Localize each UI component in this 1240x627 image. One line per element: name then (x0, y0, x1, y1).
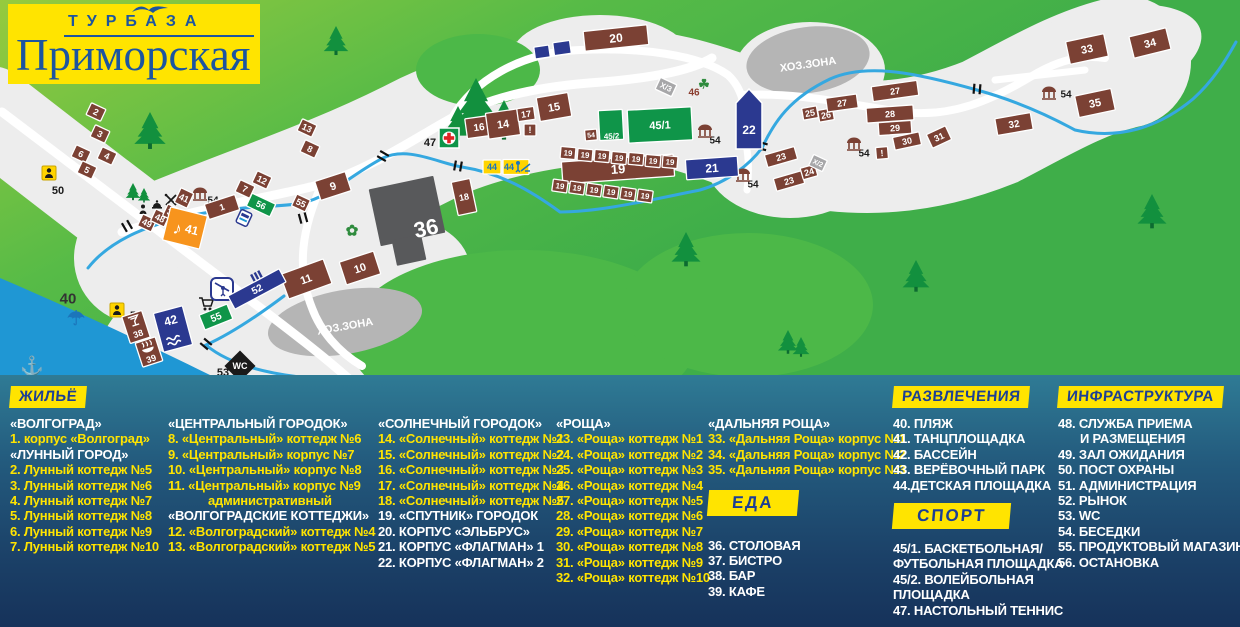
svg-text:47: 47 (424, 137, 436, 149)
map-marker-bldg-25: 25 (802, 106, 819, 120)
legend-item: 40. ПЛЯЖ (893, 416, 1063, 431)
svg-text:19: 19 (614, 153, 624, 163)
map-marker-beach-number-label: 40 (60, 290, 77, 307)
map-marker-bldg-19-tile: 19 (577, 148, 593, 161)
legend-item: 25. «Роща» коттедж №3 (556, 462, 710, 477)
legend-item: 15. «Солнечный» коттедж №2 (378, 447, 564, 462)
map-marker-security-label-1: 50 (52, 185, 64, 197)
svg-text:15: 15 (547, 101, 561, 115)
svg-text:50: 50 (52, 185, 64, 197)
legend-header-спорт: СПОРТ (892, 503, 1011, 529)
svg-text:44: 44 (487, 162, 497, 172)
legend-item: 19. «СПУТНИК» ГОРОДОК (378, 508, 564, 523)
legend-header-развлечения: РАЗВЛЕЧЕНИЯ (892, 386, 1030, 408)
legend-item: 33. «Дальняя Роща» корпус №1 (708, 431, 906, 446)
map-marker-bldg-14: 14 (485, 109, 520, 139)
svg-text:19: 19 (665, 157, 675, 167)
svg-text:18: 18 (458, 191, 470, 203)
legend-item: 18. «Солнечный» коттедж №5 (378, 493, 564, 508)
legend-item: 14. «Солнечный» коттедж №1 (378, 431, 564, 446)
map-marker-alert-tag: ! (524, 124, 536, 136)
legend-item: 42. БАССЕЙН (893, 447, 1063, 462)
map-marker-bldg-19-tile: 19 (637, 189, 654, 203)
logo: ТУРБАЗА Приморская (8, 4, 260, 84)
legend-column-6: РАЗВЛЕЧЕНИЯ40. ПЛЯЖ41. ТАНЦПЛОЩАДКА42. Б… (893, 375, 1063, 618)
legend-item: 8. «Центральный» коттедж №6 (168, 431, 375, 446)
legend-item: «ЛУННЫЙ ГОРОД» (10, 447, 159, 462)
legend-item: «ЦЕНТРАЛЬНЫЙ ГОРОДОК» (168, 416, 375, 431)
map-marker-bldg-19-tile: 19 (620, 187, 637, 201)
svg-text:19: 19 (563, 148, 573, 158)
legend-item: 21. КОРПУС «ФЛАГМАН» 1 (378, 539, 564, 554)
svg-text:19: 19 (623, 189, 634, 199)
legend-item: 11. «Центральный» корпус №9 (168, 478, 375, 493)
svg-text:27: 27 (836, 98, 847, 109)
map-marker-umbrella-icon: ☂ (67, 308, 85, 330)
map-marker-medical-cross-icon (439, 128, 459, 148)
legend-item: 55. ПРОДУКТОВЫЙ МАГАЗИН (1058, 539, 1240, 554)
svg-text:19: 19 (648, 156, 658, 166)
legend-item: 26. «Роща» коттедж №4 (556, 478, 710, 493)
legend-item: 17. «Солнечный» коттедж №4 (378, 478, 564, 493)
legend-item: 13. «Волгоградский» коттедж №5 (168, 539, 375, 554)
map-marker-navy-annex (553, 40, 572, 55)
svg-text:⚓: ⚓ (20, 355, 44, 375)
legend-item: 51. АДМИНИСТРАЦИЯ (1058, 478, 1240, 493)
turbaza-map-poster: { "logo": { "top": "ТУРБАЗА", "title": "… (0, 0, 1240, 627)
map-marker-tennis-label: 47 (424, 137, 436, 149)
legend-item: 50. ПОСТ ОХРАНЫ (1058, 462, 1240, 477)
legend-item: 41. ТАНЦПЛОЩАДКА (893, 431, 1063, 446)
map-marker-gazebo-tag-54: 54 (585, 129, 598, 141)
svg-text:22: 22 (742, 123, 756, 137)
map-marker-security-badge-2 (110, 303, 124, 317)
svg-text:19: 19 (589, 185, 600, 195)
legend-spacer (378, 386, 564, 416)
legend-item: И РАЗМЕЩЕНИЯ (1058, 431, 1240, 446)
legend-item: 9. «Центральный» корпус №7 (168, 447, 375, 462)
map-marker-gazebo-icon (698, 125, 712, 138)
map-marker-bldg-19-tile: 19 (611, 151, 627, 164)
map-marker-bldg-19-tile: 19 (628, 152, 644, 165)
map-marker-gazebo-icon (847, 138, 861, 151)
svg-text:19: 19 (572, 183, 583, 193)
logo-title: Приморская (16, 32, 250, 79)
legend-item: 44.ДЕТСКАЯ ПЛОЩАДКА (893, 478, 1063, 493)
legend-item: 37. БИСТРО (708, 553, 906, 568)
legend-item: 53. WC (1058, 508, 1240, 523)
legend-item: «СОЛНЕЧНЫЙ ГОРОДОК» (378, 416, 564, 431)
legend-item: 47. НАСТОЛЬНЫЙ ТЕННИС (893, 603, 1063, 618)
map-marker-bldg-29: 29 (878, 120, 912, 135)
svg-text:20: 20 (609, 31, 624, 46)
legend-item: 48. СЛУЖБА ПРИЕМА (1058, 416, 1240, 431)
map-marker-bldg-19-tile: 19 (569, 181, 586, 195)
map-marker-court-45-1: 45/1 (627, 107, 693, 143)
svg-text:19: 19 (580, 150, 590, 160)
legend-item: 5. Лунный коттедж №8 (10, 508, 159, 523)
svg-text:19: 19 (606, 187, 617, 197)
map-marker-bldg-19-tile: 19 (594, 149, 610, 162)
legend-item: 24. «Роща» коттедж №2 (556, 447, 710, 462)
legend-column-1: ЖИЛЬЁ«ВОЛГОГРАД»1. корпус «Волгоград»«ЛУ… (10, 375, 159, 555)
svg-text:45/1: 45/1 (649, 119, 671, 132)
map-marker-bldg-19-tile: 19 (586, 183, 603, 197)
svg-text:54: 54 (1060, 90, 1072, 101)
svg-text:✿: ✿ (346, 222, 359, 239)
legend-column-7: ИНФРАСТРУКТУРА48. СЛУЖБА ПРИЕМАИ РАЗМЕЩЕ… (1058, 375, 1240, 570)
legend-panel: ЖИЛЬЁ«ВОЛГОГРАД»1. корпус «Волгоград»«ЛУ… (0, 375, 1240, 627)
svg-text:19: 19 (555, 181, 566, 191)
map-marker-bldg-19-tile: 19 (645, 154, 661, 167)
map-marker-plant-icon: ☘ (698, 77, 710, 92)
legend-item: 29. «Роща» коттедж №7 (556, 524, 710, 539)
map-marker-bldg-19-tile: 19 (603, 185, 620, 199)
map-marker-security-badge-1 (42, 166, 56, 180)
legend-item: 12. «Волгоградский» коттедж №4 (168, 524, 375, 539)
legend-item: 35. «Дальняя Роща» корпус №3 (708, 462, 906, 477)
svg-text:17: 17 (520, 109, 531, 120)
legend-item: 23. «Роща» коттедж №1 (556, 431, 710, 446)
legend-item: 39. КАФЕ (708, 584, 906, 599)
legend-column-4: «РОЩА»23. «Роща» коттедж №124. «Роща» ко… (556, 375, 710, 585)
svg-text:19: 19 (640, 191, 651, 201)
legend-column-5: «ДАЛЬНЯЯ РОЩА»33. «Дальняя Роща» корпус … (708, 375, 906, 599)
legend-item: 27. «Роща» коттедж №5 (556, 493, 710, 508)
svg-text:36: 36 (411, 213, 440, 243)
svg-text:40: 40 (60, 290, 77, 307)
svg-text:25: 25 (804, 107, 816, 119)
svg-text:!: ! (529, 125, 532, 135)
svg-text:WC: WC (233, 361, 248, 371)
svg-text:21: 21 (705, 161, 720, 176)
legend-header-инфраструктура: ИНФРАСТРУКТУРА (1057, 386, 1224, 408)
map-marker-bldg-19-tile: 19 (560, 146, 576, 159)
svg-text:27: 27 (889, 86, 900, 97)
svg-text:16: 16 (473, 122, 486, 135)
map-marker-gazebo-icon (193, 188, 207, 201)
legend-item: «РОЩА» (556, 416, 710, 431)
legend-item: 56. ОСТАНОВКА (1058, 555, 1240, 570)
svg-text:19: 19 (597, 151, 607, 161)
map-marker-bldg-19-tile: 19 (552, 179, 569, 193)
legend-spacer (708, 386, 906, 416)
legend-item: 1. корпус «Волгоград» (10, 431, 159, 446)
legend-item: 2. Лунный коттедж №5 (10, 462, 159, 477)
legend-column-3: «СОЛНЕЧНЫЙ ГОРОДОК»14. «Солнечный» котте… (378, 375, 564, 570)
legend-item: 45/1. БАСКЕТБОЛЬНАЯ/ (893, 541, 1063, 556)
map-marker-navy-annex (534, 45, 551, 59)
legend-item: 45/2. ВОЛЕЙБОЛЬНАЯ (893, 572, 1063, 587)
map-marker-flower-icon: ✿ (346, 222, 359, 239)
svg-text:54: 54 (587, 132, 595, 140)
legend-item: 20. КОРПУС «ЭЛЬБРУС» (378, 524, 564, 539)
map-marker-bldg-17: 17 (517, 106, 536, 121)
legend-item: 32. «Роща» коттедж №10 (556, 570, 710, 585)
map-marker-anchor-icon: ⚓ (20, 355, 44, 375)
svg-text:28: 28 (885, 109, 896, 120)
map-marker-bldg-22: 22 (736, 89, 762, 149)
legend-item: 36. СТОЛОВАЯ (708, 538, 906, 553)
legend-item: 30. «Роща» коттедж №8 (556, 539, 710, 554)
legend-item: административный (168, 493, 375, 508)
legend-item: «ВОЛГОГРАД» (10, 416, 159, 431)
svg-text:45/2: 45/2 (604, 131, 621, 141)
svg-text:☂: ☂ (67, 308, 85, 330)
svg-text:35: 35 (1088, 97, 1102, 111)
legend-header-еда: ЕДА (707, 490, 799, 516)
legend-item: 4. Лунный коттедж №7 (10, 493, 159, 508)
legend-item: «ВОЛГОГРАДСКИЕ КОТТЕДЖИ» (168, 508, 375, 523)
legend-item: 31. «Роща» коттедж №9 (556, 555, 710, 570)
legend-item: 6. Лунный коттедж №9 (10, 524, 159, 539)
svg-text:29: 29 (890, 123, 901, 134)
svg-text:19: 19 (631, 154, 641, 164)
map-marker-playground-44b: 44 (503, 160, 530, 175)
legend-spacer (168, 386, 375, 416)
legend-item: 10. «Центральный» корпус №8 (168, 462, 375, 477)
legend-header-жильё: ЖИЛЬЁ (9, 386, 87, 408)
map-marker-playground-44a: 44 (483, 160, 501, 174)
map-marker-bldg-19-tile: 19 (662, 155, 678, 168)
map-marker-bldg-15: 15 (536, 92, 572, 121)
legend-item: 7. Лунный коттедж №10 (10, 539, 159, 554)
legend-item: 38. БАР (708, 568, 906, 583)
legend-item: 16. «Солнечный» коттедж №3 (378, 462, 564, 477)
legend-item: ПЛОЩАДКА (893, 587, 1063, 602)
legend-item: 54. БЕСЕДКИ (1058, 524, 1240, 539)
legend-column-2: «ЦЕНТРАЛЬНЫЙ ГОРОДОК»8. «Центральный» ко… (168, 375, 375, 555)
legend-item: 3. Лунный коттедж №6 (10, 478, 159, 493)
legend-item: ФУТБОЛЬНАЯ ПЛОЩАДКА (893, 556, 1063, 571)
legend-item: «ДАЛЬНЯЯ РОЩА» (708, 416, 906, 431)
legend-spacer (556, 386, 710, 416)
svg-text:33: 33 (1080, 43, 1094, 57)
map-marker-gazebo-icon (1042, 87, 1056, 100)
map-marker-bldg-21: 21 (685, 156, 738, 180)
legend-item: 43. ВЕРЁВОЧНЫЙ ПАРК (893, 462, 1063, 477)
map-marker-alert-tag: ! (875, 146, 888, 159)
legend-item: 49. ЗАЛ ОЖИДАНИЯ (1058, 447, 1240, 462)
legend-item: 34. «Дальняя Роща» корпус №2 (708, 447, 906, 462)
logo-subtitle: ТУРБАЗА (68, 13, 205, 31)
legend-item: 52. РЫНОК (1058, 493, 1240, 508)
map-marker-gazebo-label-5: 54 (1060, 90, 1072, 101)
svg-text:44: 44 (504, 162, 514, 172)
svg-text:30: 30 (901, 135, 913, 147)
svg-text:☘: ☘ (698, 77, 710, 92)
map-marker-court-45-2: 45/2 (598, 109, 624, 141)
legend-item: 28. «Роща» коттедж №6 (556, 508, 710, 523)
legend-item: 22. КОРПУС «ФЛАГМАН» 2 (378, 555, 564, 570)
map-marker-bldg-36-label: 36 (411, 213, 440, 243)
